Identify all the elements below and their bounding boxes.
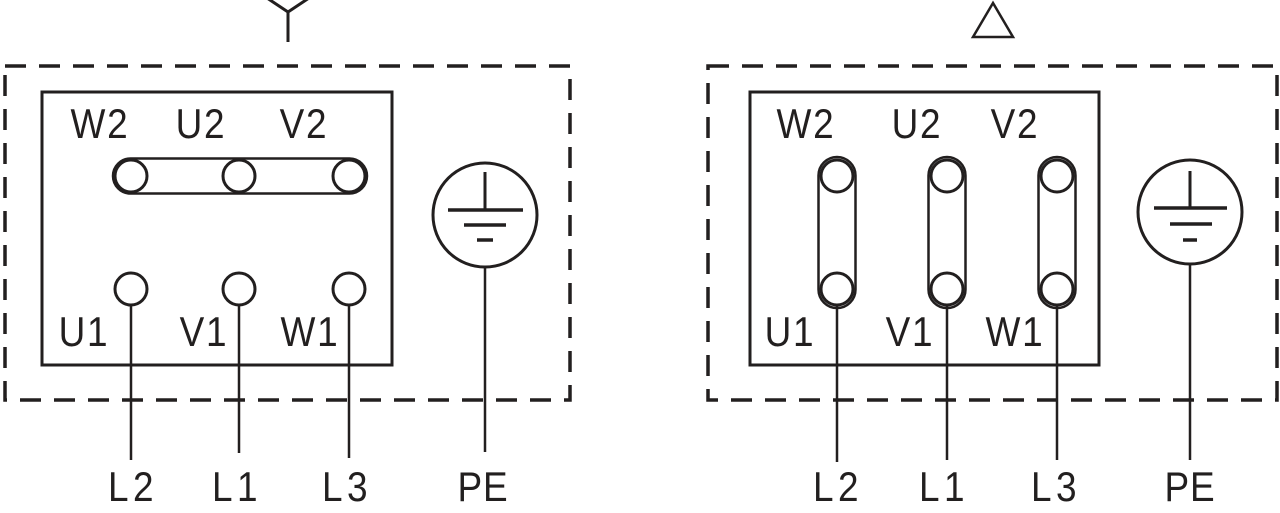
earth-symbol [1138, 160, 1242, 264]
supply-line-label-l2: L2 [108, 466, 158, 508]
terminal-circle-w2 [115, 160, 147, 192]
terminal-label-u1: U1 [765, 311, 816, 353]
terminal-label-w1: W1 [281, 311, 340, 353]
jumper-bar [113, 159, 367, 194]
terminal-circle-v2 [333, 160, 365, 192]
pe-label: PE [457, 466, 508, 508]
terminal-label-w1: W1 [986, 311, 1045, 353]
terminal-label-w2: W2 [71, 103, 130, 145]
supply-line-label-l1: L1 [212, 466, 262, 508]
jumper-link-u2-v1 [929, 157, 966, 308]
diagram-linework [0, 0, 1280, 513]
supply-line-label-l3: L3 [322, 466, 372, 508]
terminal-circle-v1 [223, 273, 255, 305]
star-icon [264, 0, 312, 42]
terminal-circle-u1 [115, 273, 147, 305]
star-connection-diagram [5, 0, 570, 460]
terminal-label-u2: U2 [176, 103, 227, 145]
terminal-label-u2: U2 [892, 103, 943, 145]
terminal-circle-v2 [1041, 160, 1073, 192]
terminal-circle-w1 [1041, 273, 1073, 305]
terminal-label-v2: V2 [991, 103, 1040, 145]
pe-label: PE [1164, 466, 1215, 508]
terminal-circle-w1 [333, 273, 365, 305]
terminal-circle-w2 [821, 160, 853, 192]
terminal-label-v2: V2 [280, 103, 329, 145]
motor-wiring-diagram: W2 U2 V2 U1 V1 W1 L2 L1 L3 PE W2 U2 V2 U… [0, 0, 1280, 513]
terminal-label-u1: U1 [59, 311, 110, 353]
jumper-link-v2-w1 [1039, 157, 1076, 308]
terminal-label-v1: V1 [886, 311, 935, 353]
delta-connection-diagram [708, 3, 1277, 462]
supply-line-label-l2: L2 [813, 466, 863, 508]
jumper-link-w2-u1 [819, 157, 856, 308]
supply-line-label-l1: L1 [919, 466, 969, 508]
delta-icon [973, 3, 1013, 37]
earth-symbol [433, 163, 537, 267]
supply-line-label-l3: L3 [1031, 466, 1081, 508]
terminal-circle-u2 [931, 160, 963, 192]
terminal-circle-v1 [931, 273, 963, 305]
terminal-circle-u2 [223, 160, 255, 192]
terminal-label-w2: W2 [777, 103, 836, 145]
terminal-label-v1: V1 [180, 311, 229, 353]
terminal-circle-u1 [821, 273, 853, 305]
